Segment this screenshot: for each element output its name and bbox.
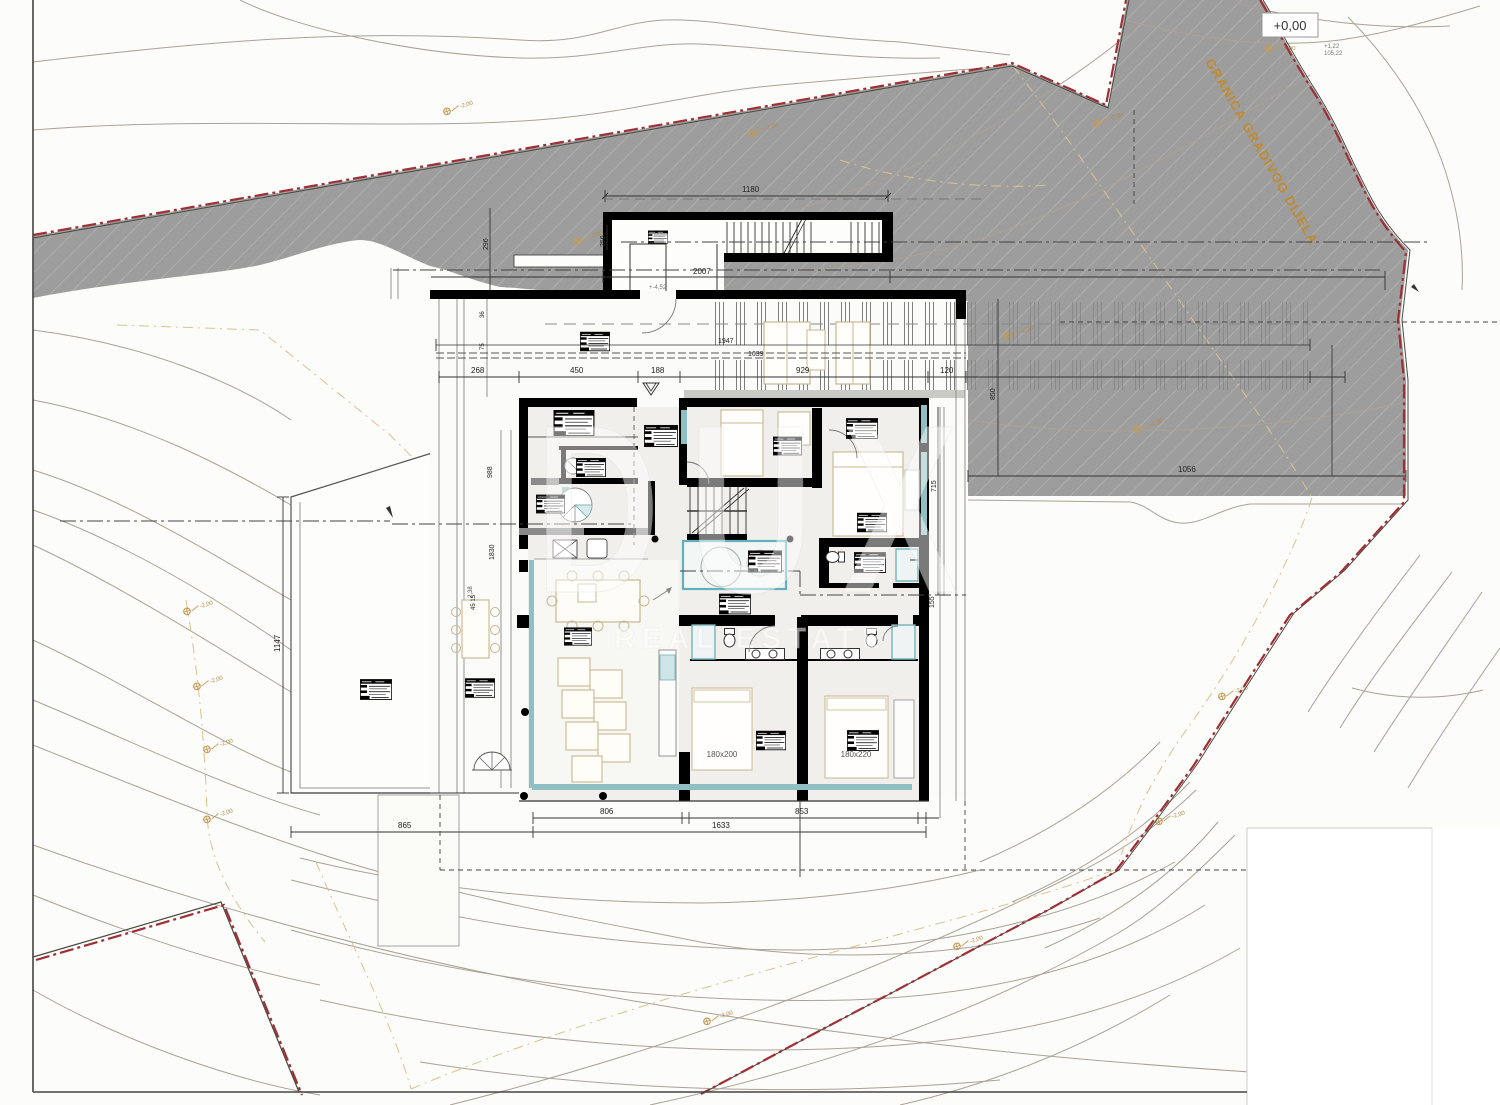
- svg-text:268: 268: [471, 366, 485, 375]
- svg-text:929: 929: [796, 366, 810, 375]
- svg-text:120: 120: [940, 366, 954, 375]
- svg-text:DUX: DUX: [535, 376, 986, 643]
- svg-text:180x220: 180x220: [841, 750, 872, 759]
- svg-text:850: 850: [990, 388, 997, 400]
- svg-text:1639: 1639: [748, 351, 764, 358]
- svg-text:+-4,52: +-4,52: [649, 285, 667, 291]
- svg-text:180x200: 180x200: [707, 750, 738, 759]
- svg-text:188: 188: [651, 366, 665, 375]
- svg-text:+0,00: +0,00: [1274, 18, 1307, 33]
- svg-text:1147: 1147: [273, 634, 282, 652]
- svg-text:REAL ESTATE: REAL ESTATE: [614, 623, 888, 655]
- svg-text:1180: 1180: [742, 185, 760, 194]
- svg-text:36: 36: [480, 311, 486, 318]
- svg-text:853: 853: [795, 807, 809, 816]
- svg-text:105,22: 105,22: [1324, 51, 1343, 57]
- svg-text:2,38: 2,38: [468, 586, 474, 598]
- svg-text:256: 256: [600, 235, 607, 247]
- svg-text:296: 296: [483, 238, 490, 250]
- svg-text:1947: 1947: [718, 338, 734, 345]
- svg-text:2007: 2007: [693, 267, 711, 276]
- svg-text:1633: 1633: [712, 821, 730, 830]
- svg-text:1830: 1830: [489, 544, 496, 560]
- svg-text:+1,22: +1,22: [1324, 44, 1340, 50]
- svg-text:865: 865: [398, 821, 412, 830]
- svg-text:806: 806: [600, 807, 614, 816]
- svg-text:1056: 1056: [1178, 465, 1196, 474]
- svg-text:75: 75: [480, 343, 486, 350]
- svg-text:988: 988: [487, 466, 494, 478]
- svg-text:450: 450: [570, 366, 584, 375]
